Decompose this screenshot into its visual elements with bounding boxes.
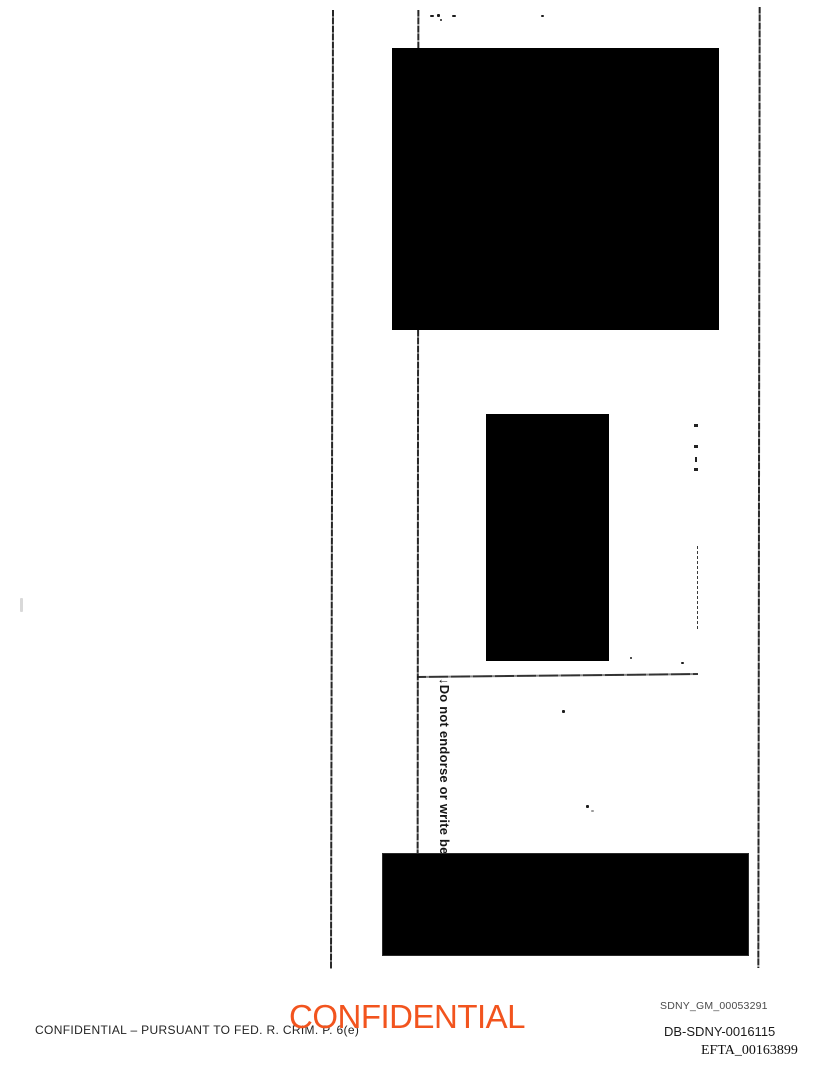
bates-number-sdny-gm: SDNY_GM_00053291 [660, 1000, 768, 1012]
scan-speck [437, 14, 440, 17]
scan-tick [694, 424, 698, 427]
scan-speck [591, 810, 594, 812]
bates-number-efta: EFTA_00163899 [701, 1043, 798, 1059]
scan-speck [440, 19, 442, 21]
scan-tick [694, 445, 698, 448]
scan-speck [452, 15, 456, 17]
scan-speck [562, 710, 565, 713]
redaction-box-top [392, 48, 719, 330]
scan-speck [430, 15, 434, 17]
scan-speck [586, 805, 589, 808]
scan-dashed-line [697, 546, 698, 631]
scan-vertical-line-right [757, 7, 760, 968]
scan-vertical-line-left [330, 10, 334, 969]
confidential-stamp: CONFIDENTIAL [289, 1000, 525, 1034]
bates-number-db-sdny: DB-SDNY-0016115 [664, 1024, 775, 1039]
redaction-box-bottom [382, 853, 749, 956]
scan-speck [681, 662, 684, 664]
scan-speck [20, 598, 23, 612]
scan-tick [695, 457, 697, 462]
scan-tick [694, 468, 698, 471]
scanned-document-page: ↓Do not endorse or write be CONFIDENTIAL… [0, 0, 816, 1073]
scan-speck [630, 657, 632, 659]
redaction-box-middle [486, 414, 609, 661]
scan-horizontal-line [417, 673, 698, 678]
scan-speck [541, 15, 544, 17]
